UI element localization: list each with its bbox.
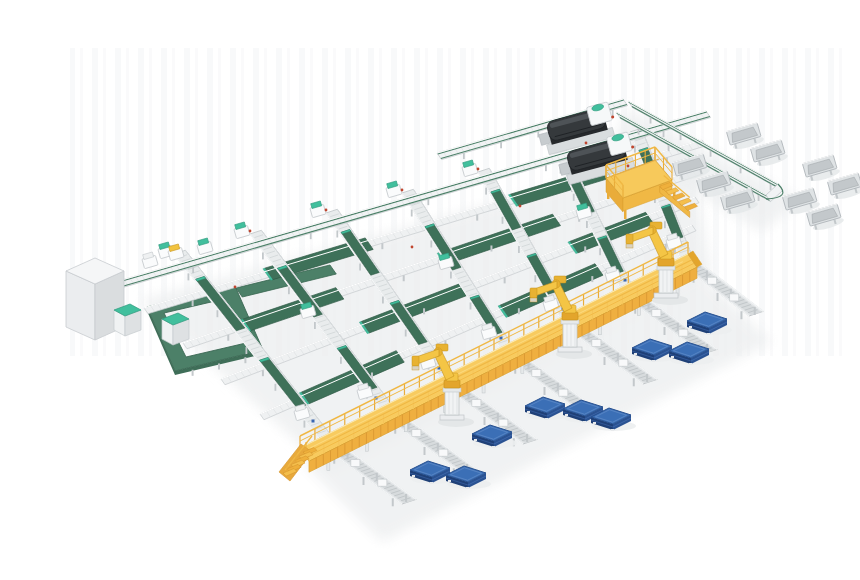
factory-3d-illustration [0, 0, 860, 580]
sensor-dot-red [627, 165, 630, 168]
sensor-dot-red [411, 246, 414, 249]
control-cabinet [162, 313, 189, 345]
sensor-dot-red [519, 205, 522, 208]
sensor-dot-red [249, 230, 252, 233]
sensor-dot-red [477, 168, 480, 171]
control-cabinet [114, 304, 141, 336]
sensor-dot-red [325, 209, 328, 212]
sensor-dot-red [234, 286, 237, 289]
factory-render-canvas: 3D render of an automated conveyor sorti… [0, 0, 860, 580]
sensor-dot-red [585, 142, 588, 145]
sensor-dot-red [401, 189, 404, 192]
sensor-dot-blue [500, 337, 503, 340]
sensor-dot-blue [312, 420, 315, 423]
